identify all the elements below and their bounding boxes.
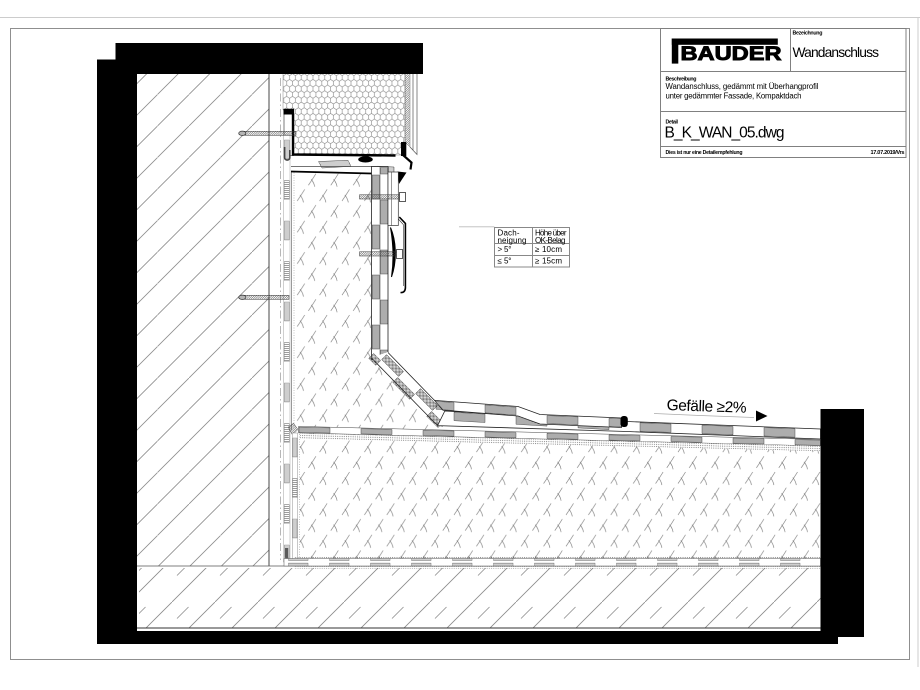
- svg-text:neigung: neigung: [498, 236, 527, 245]
- svg-text:OK-Belag: OK-Belag: [535, 236, 566, 245]
- svg-text:B_K_WAN_05.dwg: B_K_WAN_05.dwg: [665, 125, 785, 142]
- svg-text:≥ 10cm: ≥ 10cm: [535, 245, 562, 254]
- svg-text:≤ 5°: ≤ 5°: [498, 257, 512, 266]
- svg-text:Bezeichnung: Bezeichnung: [793, 31, 823, 37]
- svg-text:Wandanschluss: Wandanschluss: [793, 45, 880, 60]
- svg-text:Gefälle ≥2%: Gefälle ≥2%: [666, 397, 747, 417]
- svg-text:> 5°: > 5°: [498, 245, 512, 254]
- svg-text:Wandanschluss, gedämmt mit Übe: Wandanschluss, gedämmt mit Überhangprofi…: [666, 82, 819, 91]
- svg-text:≥ 15cm: ≥ 15cm: [535, 257, 562, 266]
- svg-text:BAUDER: BAUDER: [681, 44, 782, 65]
- svg-text:17.07.2019/Vrs: 17.07.2019/Vrs: [871, 150, 905, 156]
- svg-text:unter gedämmter Fassade, Kompa: unter gedämmter Fassade, Kompaktdach: [666, 92, 802, 101]
- svg-text:Dies ist nur eine Detailempfeh: Dies ist nur eine Detailempfehlung: [666, 150, 743, 156]
